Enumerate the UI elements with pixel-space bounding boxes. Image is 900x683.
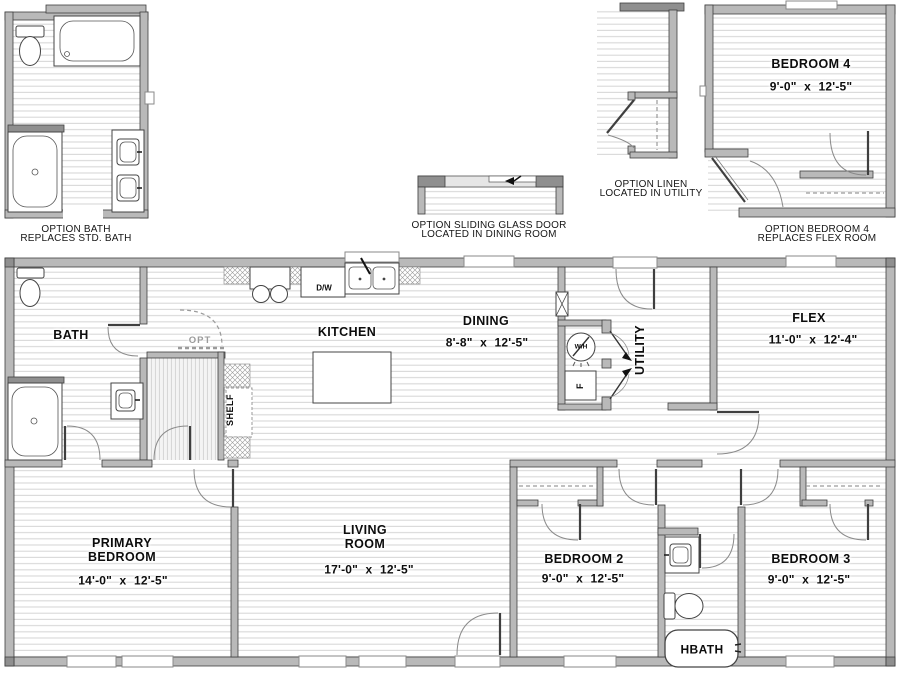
- room-label-living-line2: ROOM: [345, 538, 386, 552]
- living-window-1: [299, 656, 346, 667]
- room-label-primary-line1: PRIMARY: [92, 537, 152, 551]
- room-dims-primary: 14'-0" x 12'-5": [78, 574, 167, 587]
- wardrobe-closet: [147, 355, 222, 460]
- room-dims-bedroom4-option: 9'-0" x 12'-5": [770, 80, 853, 93]
- room-dims-flex: 11'-0" x 12'-4": [769, 333, 858, 346]
- floorplan-page: .w{fill:#b9b9b9;stroke:#3f3f3f;stroke-wi…: [0, 0, 900, 683]
- option-bath-plan: [5, 5, 154, 219]
- caption-line: REPLACES FLEX ROOM: [758, 235, 877, 244]
- flex-window: [786, 256, 836, 267]
- shower-icon: [8, 377, 64, 460]
- bath-sink-icon: [111, 383, 143, 419]
- room-label-bedroom2: BEDROOM 2: [544, 553, 623, 567]
- option-linen-plan: [597, 3, 684, 158]
- room-label-kitchen: KITCHEN: [318, 326, 376, 340]
- shower-icon: [8, 125, 64, 212]
- garden-tub-icon: [54, 16, 140, 66]
- furnace-label: F: [576, 383, 586, 389]
- option-sliding-door-plan: [418, 176, 563, 214]
- rear-door: [613, 257, 657, 268]
- option-sliding-door-caption: OPTION SLIDING GLASS DOOR LOCATED IN DIN…: [411, 222, 566, 240]
- kitchen-island: [313, 352, 391, 403]
- dishwasher-label: D/W: [316, 285, 332, 294]
- room-label-bedroom4-option: BEDROOM 4: [771, 58, 850, 72]
- option-bath-caption: OPTION BATH REPLACES STD. BATH: [20, 226, 131, 244]
- caption-line: REPLACES STD. BATH: [20, 235, 131, 244]
- dining-window: [464, 256, 514, 267]
- water-heater-label: W/H: [575, 343, 588, 350]
- room-label-hbath: HBATH: [680, 643, 723, 656]
- caption-line: LOCATED IN UTILITY: [600, 190, 703, 199]
- room-label-dining: DINING: [463, 315, 509, 329]
- kitchen-window: [345, 252, 399, 262]
- room-label-flex: FLEX: [792, 312, 826, 326]
- option-bedroom4-caption: OPTION BEDROOM 4 REPLACES FLEX ROOM: [758, 226, 877, 244]
- room-dims-dining: 8'-8" x 12'-5": [446, 336, 529, 349]
- optional-door-label: OPT: [189, 336, 212, 346]
- hbath-toilet-icon: [664, 593, 703, 619]
- bedroom3-window: [786, 656, 834, 667]
- primary-window-1: [67, 656, 116, 667]
- option-bedroom4-plan: [700, 1, 895, 217]
- room-label-utility: UTILITY: [634, 325, 648, 375]
- room-label-bedroom3: BEDROOM 3: [771, 553, 850, 567]
- chase-vent: [556, 292, 568, 316]
- bedroom2-window: [564, 656, 616, 667]
- room-label-living-line1: LIVING: [343, 524, 387, 538]
- double-vanity-sink-icon: [112, 130, 144, 212]
- main-floor-plan: [5, 252, 895, 667]
- room-dims-bedroom2: 9'-0" x 12'-5": [542, 572, 625, 585]
- room-dims-living: 17'-0" x 12'-5": [324, 563, 413, 576]
- hbath-sink-icon: [664, 537, 699, 573]
- room-label-bath: BATH: [53, 329, 88, 343]
- living-window-2: [359, 656, 406, 667]
- option-linen-caption: OPTION LINEN LOCATED IN UTILITY: [600, 181, 703, 199]
- caption-line: LOCATED IN DINING ROOM: [411, 231, 566, 240]
- kitchen-sink-icon: [345, 258, 399, 294]
- front-door: [455, 656, 500, 667]
- room-label-primary-line2: BEDROOM: [88, 551, 156, 565]
- shelf-label: SHELF: [226, 394, 236, 426]
- room-dims-bedroom3: 9'-0" x 12'-5": [768, 573, 851, 586]
- primary-window-2: [122, 656, 173, 667]
